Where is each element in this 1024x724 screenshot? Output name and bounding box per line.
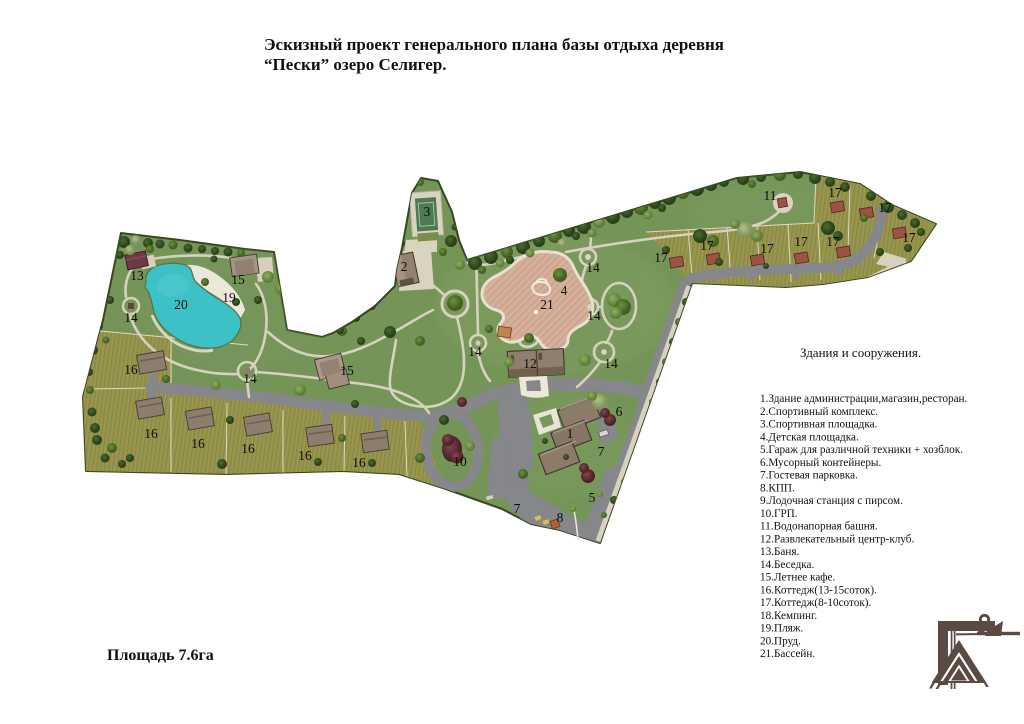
svg-text:8.КПП.: 8.КПП. (760, 482, 795, 494)
svg-text:13: 13 (130, 268, 144, 283)
svg-text:16: 16 (124, 362, 138, 377)
svg-text:21.Бассейн.: 21.Бассейн. (760, 648, 815, 660)
svg-text:14: 14 (586, 260, 600, 275)
svg-text:14: 14 (468, 344, 482, 359)
svg-text:17.Коттедж(8-10соток).: 17.Коттедж(8-10соток). (760, 597, 871, 609)
svg-text:16: 16 (352, 455, 366, 470)
svg-text:14: 14 (243, 371, 257, 386)
svg-text:15: 15 (231, 272, 245, 287)
svg-text:16: 16 (144, 426, 158, 441)
svg-text:17: 17 (878, 200, 892, 215)
svg-text:13.Баня.: 13.Баня. (760, 546, 800, 558)
svg-text:7: 7 (514, 501, 521, 516)
svg-text:17: 17 (902, 230, 916, 245)
svg-text:1.Здание администрации,магазин: 1.Здание администрации,магазин,ресторан. (760, 393, 968, 405)
svg-text:7.Гостевая парковка.: 7.Гостевая парковка. (760, 470, 858, 482)
svg-text:14.Беседка.: 14.Беседка. (760, 559, 814, 571)
svg-text:19: 19 (222, 290, 236, 305)
svg-text:7: 7 (598, 444, 605, 459)
svg-text:18.Кемпинг.: 18.Кемпинг. (760, 610, 817, 622)
svg-text:17: 17 (760, 241, 774, 256)
svg-text:Эскизный проект генерального п: Эскизный проект генерального плана базы … (264, 35, 724, 54)
svg-text:11: 11 (764, 188, 777, 203)
svg-text:10.ГРП.: 10.ГРП. (760, 508, 798, 520)
svg-text:20: 20 (174, 297, 188, 312)
svg-text:14: 14 (587, 308, 601, 323)
svg-text:14: 14 (604, 356, 618, 371)
svg-text:15: 15 (340, 363, 354, 378)
svg-text:3: 3 (424, 204, 431, 219)
svg-text:19.Пляж.: 19.Пляж. (760, 623, 804, 635)
svg-text:4.Детская площадка.: 4.Детская площадка. (760, 431, 859, 443)
svg-text:Здания и сооружения.: Здания и сооружения. (800, 345, 921, 360)
svg-text:16.Коттедж(13-15соток).: 16.Коттедж(13-15соток). (760, 584, 877, 596)
svg-text:9.Лодочная станция с пирсом.: 9.Лодочная станция с пирсом. (760, 495, 903, 507)
svg-text:17: 17 (826, 234, 840, 249)
svg-text:21: 21 (540, 297, 554, 312)
svg-text:12: 12 (523, 356, 537, 371)
svg-text:2: 2 (401, 259, 408, 274)
svg-text:“Пески” озеро Селигер.: “Пески” озеро Селигер. (264, 55, 447, 74)
svg-text:Площадь 7.6га: Площадь 7.6га (107, 647, 214, 664)
svg-text:20.Пруд.: 20.Пруд. (760, 635, 801, 647)
svg-text:17: 17 (654, 250, 668, 265)
svg-text:8: 8 (557, 510, 564, 525)
svg-text:6: 6 (616, 404, 623, 419)
svg-text:4: 4 (561, 283, 568, 298)
svg-text:16: 16 (298, 448, 312, 463)
svg-text:12.Развлекательный центр-клуб.: 12.Развлекательный центр-клуб. (760, 533, 914, 545)
svg-text:16: 16 (191, 436, 205, 451)
svg-text:6.Мусорный контейнеры.: 6.Мусорный контейнеры. (760, 457, 881, 469)
svg-text:2.Спортивный комплекс.: 2.Спортивный комплекс. (760, 406, 878, 418)
svg-text:17: 17 (794, 234, 808, 249)
svg-text:11.Водонапорная башня.: 11.Водонапорная башня. (760, 521, 878, 533)
svg-text:17: 17 (828, 185, 842, 200)
svg-text:3.Спортивная площадка.: 3.Спортивная площадка. (760, 419, 878, 431)
svg-text:14: 14 (124, 310, 138, 325)
svg-text:16: 16 (241, 441, 255, 456)
svg-text:15.Летнее кафе.: 15.Летнее кафе. (760, 572, 836, 584)
svg-text:17: 17 (700, 238, 714, 253)
svg-text:5.Гараж для различной техники: 5.Гараж для различной техники + хозблок. (760, 444, 963, 456)
svg-text:1: 1 (567, 426, 574, 441)
svg-text:10: 10 (453, 454, 467, 469)
svg-text:5: 5 (589, 490, 596, 505)
